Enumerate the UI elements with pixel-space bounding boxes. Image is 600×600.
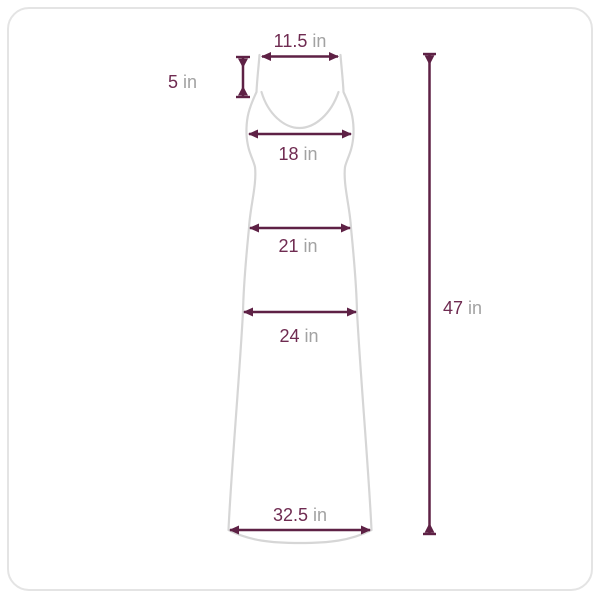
measurement-value: 47 [443,298,463,318]
strap-drop-arrow-top [238,59,248,69]
top-width-label: 11.5in [274,31,327,51]
dimension-top-width: 11.5in [261,31,339,61]
bust-arrow-left [248,130,258,139]
dimension-hem: 32.5in [229,505,371,535]
measurement-unit: in [183,72,197,92]
hip-arrow-left [243,308,253,317]
measurement-unit: in [304,144,318,164]
measurement-value: 21 [278,236,298,256]
hem-label: 32.5in [273,505,327,525]
dress-neckline [262,92,339,128]
dimension-strap-drop: 5in [168,57,250,97]
length-arrow-bottom [425,523,435,533]
waist-arrow-left [249,224,259,233]
dimension-hip: 24in [243,308,357,347]
measurement-unit: in [305,326,319,346]
bust-label: 18in [278,144,317,164]
measurement-unit: in [468,298,482,318]
dimension-length: 47in [423,54,482,534]
measurement-value: 18 [278,144,298,164]
length-arrow-top [425,55,435,65]
measurement-value: 11.5 [274,31,308,51]
measurement-value: 5 [168,72,178,92]
measurement-unit: in [304,236,318,256]
hip-arrow-right [347,308,357,317]
measurement-value: 24 [279,326,299,346]
strap-drop-label: 5in [168,72,197,92]
measurement-value: 32.5 [273,505,308,525]
dimension-bust: 18in [248,130,352,165]
size-chart-card: 11.5in 5in 18in [0,0,600,600]
measurement-unit: in [312,31,326,51]
measurement-unit: in [313,505,327,525]
length-label: 47in [443,298,482,318]
top-width-arrow-left [261,52,271,61]
bust-arrow-right [342,130,352,139]
size-diagram: 11.5in 5in 18in [0,0,600,600]
waist-label: 21in [278,236,317,256]
dimension-waist: 21in [249,224,351,257]
strap-drop-arrow-bottom [238,86,248,96]
dress-outline [229,55,372,543]
waist-arrow-right [341,224,351,233]
top-width-arrow-right [329,52,339,61]
hip-label: 24in [279,326,318,346]
